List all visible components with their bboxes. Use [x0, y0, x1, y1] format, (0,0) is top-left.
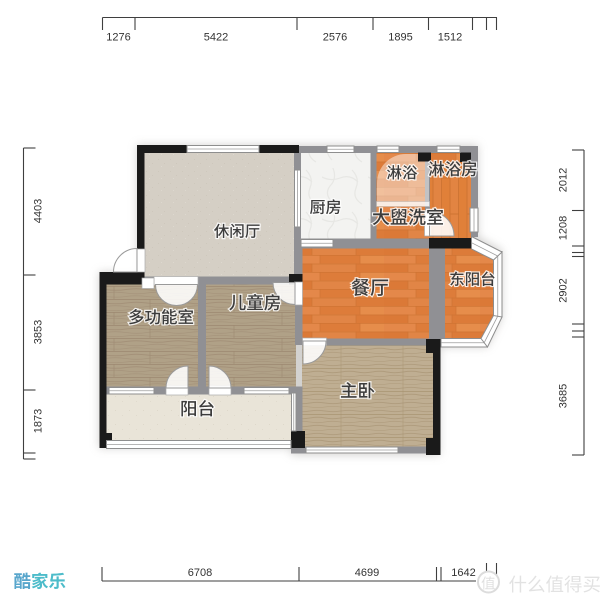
svg-text:1208: 1208 [558, 216, 570, 240]
svg-text:1873: 1873 [33, 409, 45, 433]
svg-text:2012: 2012 [558, 168, 570, 192]
svg-text:2902: 2902 [558, 278, 570, 302]
svg-text:1642: 1642 [451, 567, 475, 579]
svg-text:4403: 4403 [33, 199, 45, 223]
svg-text:3853: 3853 [33, 320, 45, 344]
svg-text:1895: 1895 [388, 32, 412, 44]
svg-text:5422: 5422 [204, 32, 228, 44]
svg-text:2576: 2576 [323, 32, 347, 44]
svg-text:1276: 1276 [106, 32, 130, 44]
svg-text:6708: 6708 [188, 567, 212, 579]
svg-text:3685: 3685 [558, 384, 570, 408]
svg-text:4699: 4699 [355, 567, 379, 579]
svg-text:1512: 1512 [438, 32, 462, 44]
